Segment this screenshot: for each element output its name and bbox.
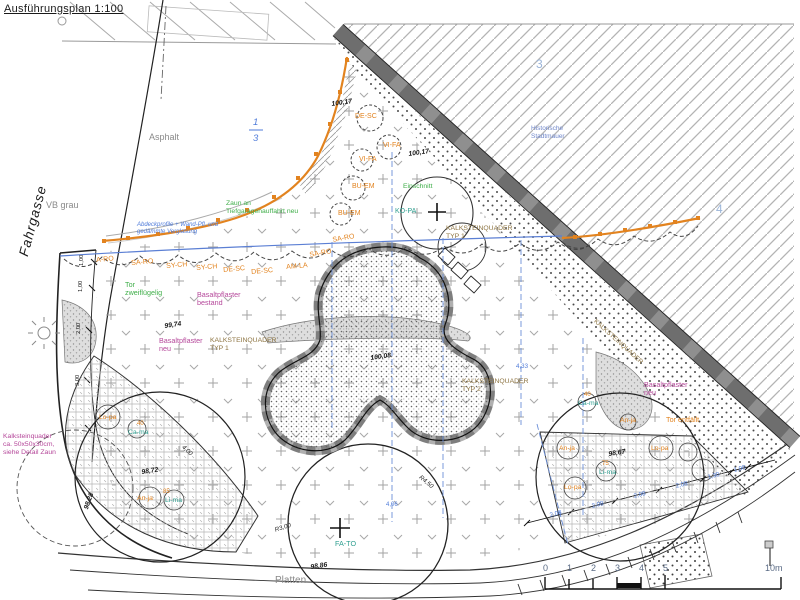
label-region-3: 3 bbox=[536, 57, 543, 71]
label-plant-bu-em-2: BU-EM bbox=[338, 210, 361, 218]
label-plant-bu-em-1: BU-EM bbox=[352, 183, 375, 191]
label-plant-vi-fa-2: VI-FA bbox=[359, 156, 377, 164]
label-bed2-lo-pa-1: Lo-pa bbox=[651, 445, 668, 453]
label-chain-1-00-a: 1,00 bbox=[79, 255, 86, 266]
label-basalt-neu-2: Basaltpflaster neu bbox=[644, 381, 688, 398]
label-frac-den: 3 bbox=[253, 133, 258, 144]
label-plant-vi-fa-1: VI-FA bbox=[383, 142, 401, 150]
label-platten: Platten bbox=[275, 575, 306, 587]
label-bed1-li-ma: Li-ma bbox=[165, 497, 182, 505]
label-bed2-qty-75: 75 bbox=[602, 461, 609, 468]
label-ksq-typ1-b: KALKSTEINQUADER TYP 1 bbox=[210, 337, 276, 353]
label-basalt-neu-1: Basaltpflaster neu bbox=[159, 337, 203, 354]
label-plant-de-sc-3: DE-SC bbox=[355, 113, 377, 121]
label-kalk-note: Kalksteinquader ca. 50x50x30cm, siehe De… bbox=[3, 433, 56, 457]
sun-symbol bbox=[28, 317, 60, 349]
label-chain-1-00-b: 1,00 bbox=[78, 281, 85, 292]
label-ksq-typ2: KALKSTEINQUADER TYP 2 bbox=[462, 378, 528, 394]
label-tree-fa-to: FA-TO bbox=[335, 540, 356, 548]
scalebar-end-label: 10m bbox=[765, 563, 783, 573]
plan-title: Ausführungsplan 1:100 bbox=[4, 3, 123, 15]
label-einschnitt: Einschnitt bbox=[403, 183, 432, 191]
label-bed1-ca-ma: Ca-ma bbox=[128, 429, 148, 437]
label-bed2-lo-pa-2: Lo-pa bbox=[564, 484, 581, 492]
label-hist-stadtmauer: Historische Stadtmauer bbox=[531, 125, 565, 140]
scalebar-tick-0: 0 bbox=[543, 563, 548, 573]
label-bed1-qty-85: 85 bbox=[163, 489, 170, 496]
label-dim-4-33: 4,33 bbox=[516, 363, 528, 370]
scalebar-tick-3: 3 bbox=[615, 563, 620, 573]
label-tree-ko-pa: KO-PA bbox=[395, 208, 416, 216]
label-frac-num: 1 bbox=[253, 117, 258, 128]
label-vb-grau: VB grau bbox=[46, 200, 79, 211]
scalebar-tick-4: 4 bbox=[639, 563, 644, 573]
label-ksq-typ1-a: KALKSTEINQUADER TYP 1 bbox=[446, 225, 512, 241]
label-bed1-qty-40: 40 bbox=[137, 421, 144, 428]
plan-drawing bbox=[0, 0, 800, 600]
label-zaun-tiefgarage: Zaun an Tiefgaragenauffahrt neu bbox=[226, 200, 298, 216]
label-bed2-li-ma: Li-ma bbox=[599, 469, 616, 477]
plan-canvas: Ausführungsplan 1:100 FahrgasseVB grauAs… bbox=[0, 0, 800, 600]
label-tor-entfaellt: Tor entfällt bbox=[666, 416, 699, 424]
label-bed2-ca-ma: Ca-ma bbox=[578, 400, 598, 408]
label-bed2-an-ja-2: An-ja bbox=[620, 417, 636, 425]
label-asphalt: Asphalt bbox=[149, 132, 179, 143]
label-bed1-lo-pa: Lo-pa bbox=[99, 414, 116, 422]
label-region-4: 4 bbox=[716, 202, 723, 216]
scalebar-tick-1: 1 bbox=[567, 563, 572, 573]
label-abdeckprofile-note: Abdeckprofile + Wand-Pfl. und gedämmte V… bbox=[137, 222, 218, 236]
parking-area bbox=[58, 2, 336, 100]
label-dim-4-06: 4,06 bbox=[386, 502, 398, 509]
label-chain-2-00: 2,00 bbox=[76, 323, 83, 334]
label-bed1-an-ja: An-ja bbox=[137, 495, 153, 503]
label-basalt-bestand: Basaltpflaster bestand bbox=[197, 291, 241, 308]
label-plant-a-ro: A-RO bbox=[96, 255, 114, 265]
label-tor-zweifluegelig: Tor zweiflügelig bbox=[125, 281, 162, 298]
label-bed2-an-ja: An-ja bbox=[559, 445, 575, 453]
scalebar-tick-2: 2 bbox=[591, 563, 596, 573]
label-bed2-qty-40: 40 bbox=[584, 392, 591, 399]
scalebar-tick-5: 5 bbox=[663, 563, 668, 573]
label-chain-3-00: 3,00 bbox=[75, 375, 82, 386]
